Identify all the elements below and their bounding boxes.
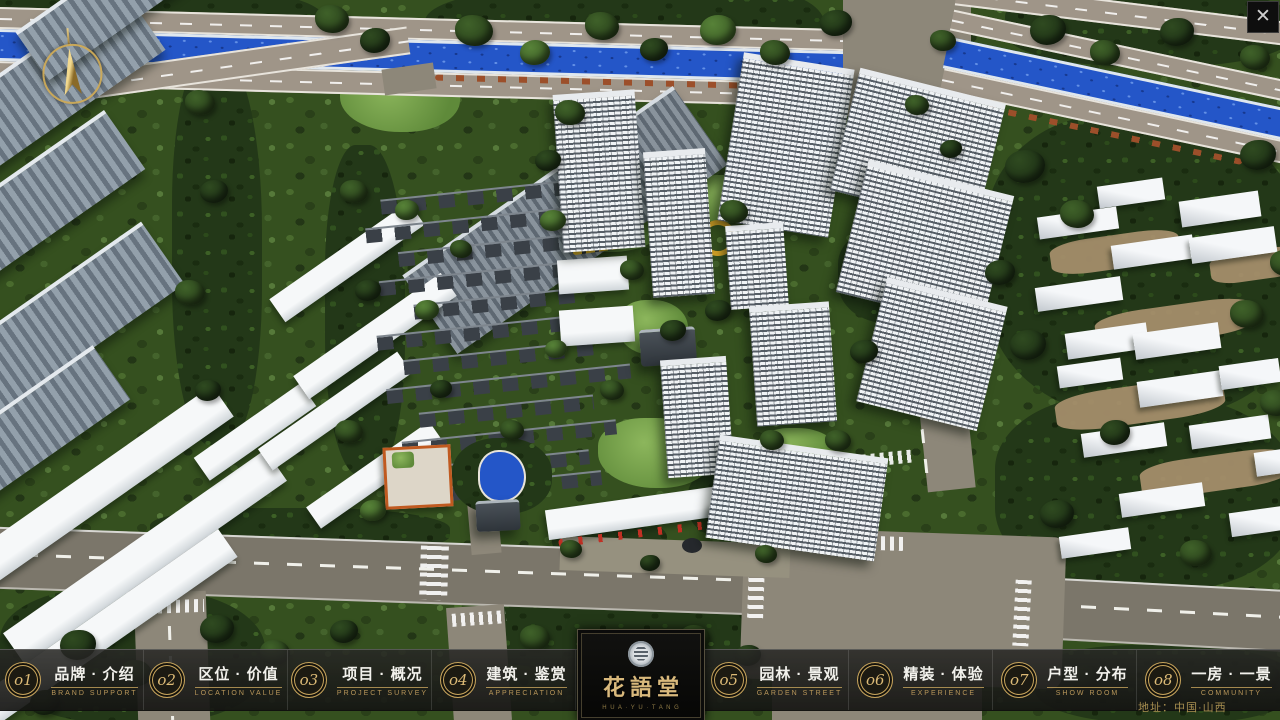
tree-cluster <box>455 15 493 46</box>
gold-divider <box>757 687 843 688</box>
gold-divider <box>195 687 283 688</box>
tree-cluster <box>585 12 619 40</box>
tree-cluster <box>175 280 205 305</box>
tree-cluster <box>555 100 585 125</box>
project-address: 地址：中国·山西 <box>1138 699 1227 715</box>
tree-cluster <box>330 620 358 643</box>
nav-item-project[interactable]: o3 项目 · 概况 PROJECT SURVEY <box>287 650 431 710</box>
masterplan-viewport[interactable] <box>0 0 1280 720</box>
nav-badge-01: o1 <box>5 662 41 698</box>
nav-label-en: LOCATION VALUE <box>195 690 283 697</box>
nav-label-en: BRAND SUPPORT <box>51 690 137 697</box>
tree-cluster <box>760 40 790 65</box>
nav-item-interior[interactable]: o6 精装 · 体验 EXPERIENCE <box>848 650 992 710</box>
crosswalk <box>419 546 449 601</box>
nav-label-zh: 园林 · 景观 <box>759 663 839 684</box>
community-lowrise <box>559 305 635 346</box>
tree-cluster <box>185 90 215 115</box>
gold-divider <box>1047 687 1127 688</box>
nav-label-zh: 一房 · 一景 <box>1191 663 1271 684</box>
tree-cluster <box>720 200 748 223</box>
courtyard-homes-row <box>398 234 574 267</box>
nav-label-zh: 户型 · 分布 <box>1047 663 1127 684</box>
courtyard-homes-row <box>413 288 579 320</box>
gold-divider <box>486 687 566 688</box>
tree-cluster <box>450 240 472 258</box>
nav-item-location[interactable]: o2 区位 · 价值 LOCATION VALUE <box>143 650 287 710</box>
project-name-latin: H U A · Y U · T A N G <box>602 705 680 711</box>
swimming-pool <box>478 450 526 502</box>
nav-item-architecture[interactable]: o4 建筑 · 鉴赏 APPRECIATION <box>431 650 575 710</box>
tree-cluster <box>905 95 929 115</box>
nav-label-zh: 品牌 · 介绍 <box>54 663 134 684</box>
nav-label-en: APPRECIATION <box>489 690 565 697</box>
nav-label-en: GARDEN STREET <box>757 690 843 697</box>
nav-badge-04: o4 <box>440 662 476 698</box>
tree-cluster <box>1240 45 1270 70</box>
tree-cluster <box>600 380 624 400</box>
nav-label-en: PROJECT SURVEY <box>337 690 428 697</box>
presentation-window: ✕ o1 品牌 · 介绍 BRAND SUPPORT o2 区位 · 价值 LO… <box>0 0 1280 720</box>
tree-cluster <box>1090 40 1120 65</box>
gold-divider <box>51 687 137 688</box>
gold-divider <box>903 687 983 688</box>
community-lowrise <box>557 256 629 295</box>
highrise-tower <box>749 301 837 426</box>
tree-cluster <box>620 260 644 280</box>
gold-divider <box>1191 687 1271 688</box>
close-icon: ✕ <box>1255 5 1271 27</box>
nav-badge-07: o7 <box>1001 662 1037 698</box>
highrise-tower <box>643 148 715 298</box>
pavilion-roof <box>475 499 521 532</box>
nav-group-left: o1 品牌 · 介绍 BRAND SUPPORT o2 区位 · 价值 LOCA… <box>0 650 576 710</box>
tree-cluster <box>520 625 550 650</box>
close-button[interactable]: ✕ <box>1247 1 1279 33</box>
tree-cluster <box>560 540 582 558</box>
nav-label-zh: 项目 · 概况 <box>342 663 422 684</box>
nav-label-en: EXPERIENCE <box>911 690 976 697</box>
tree-cluster <box>1230 300 1264 328</box>
tree-cluster <box>705 300 731 321</box>
tree-cluster <box>500 420 524 440</box>
roof-garden <box>392 451 415 468</box>
nav-badge-02: o2 <box>149 662 185 698</box>
highrise-tower <box>725 222 789 310</box>
compass-icon <box>35 25 108 112</box>
entrance-circle <box>682 538 702 553</box>
nav-item-garden[interactable]: o5 园林 · 景观 GARDEN STREET <box>705 650 848 710</box>
nav-item-floorplan[interactable]: o7 户型 · 分布 SHOW ROOM <box>992 650 1136 710</box>
nav-item-brand[interactable]: o1 品牌 · 介绍 BRAND SUPPORT <box>0 650 143 710</box>
tree-cluster <box>755 545 777 563</box>
tree-cluster <box>340 180 368 203</box>
tree-cluster <box>315 5 349 33</box>
tree-cluster <box>335 420 363 443</box>
nav-label-zh: 建筑 · 鉴赏 <box>486 663 566 684</box>
tree-cluster <box>1260 390 1280 416</box>
tree-cluster <box>1180 540 1212 566</box>
nav-label-zh: 精装 · 体验 <box>903 663 983 684</box>
tree-cluster <box>930 30 956 51</box>
project-logo-button[interactable]: 花語堂 H U A · Y U · T A N G <box>577 629 705 720</box>
gold-divider <box>337 687 428 688</box>
tree-cluster <box>1060 200 1094 228</box>
nav-badge-03: o3 <box>291 662 327 698</box>
nav-label-en: COMMUNITY <box>1201 690 1262 697</box>
nav-badge-06: o6 <box>857 662 893 698</box>
nav-label-en: SHOW ROOM <box>1056 690 1120 697</box>
seal-emblem-icon <box>628 641 654 667</box>
tree-cluster <box>760 430 784 450</box>
nav-badge-08: o8 <box>1145 662 1181 698</box>
nav-label-zh: 区位 · 价值 <box>198 663 278 684</box>
nav-badge-05: o5 <box>711 662 747 698</box>
tree-cluster <box>825 430 851 451</box>
project-name: 花語堂 <box>603 670 684 702</box>
